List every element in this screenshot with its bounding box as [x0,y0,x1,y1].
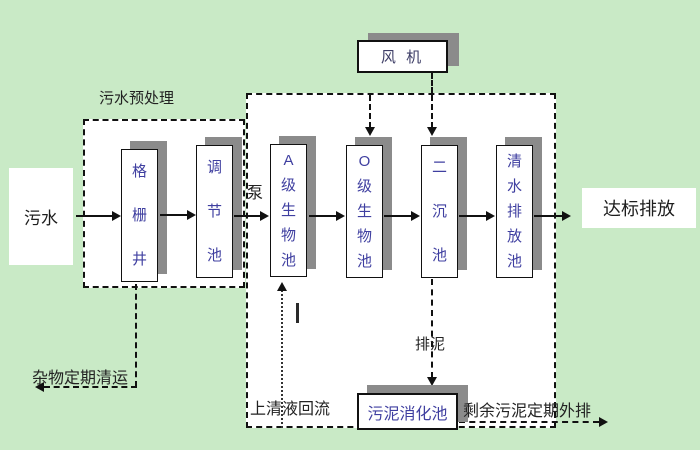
grid-well-box: 格栅井 [121,149,158,282]
debris-removal-label: 杂物定期清运 [32,364,128,388]
secondary-clarifier-label: 二沉池 [432,146,447,278]
wastewater-treatment-flow-diagram: 污水预处理 污水 达标排放 风 机 格栅井 调节池 A级生物池 O级生物池 二沉… [0,0,700,450]
o-bio-tank-label: O级生物池 [357,149,372,274]
excess-sludge-label: 剩余污泥定期外排 [463,397,591,421]
a-bio-tank-box: A级生物池 [270,144,307,277]
supernatant-return-label: 上清液回流 [250,395,330,419]
fan-label: 风 机 [381,46,424,67]
secondary-clarifier-box: 二沉池 [421,145,458,278]
flow-arrow-clarifier-to-clearwater [459,215,486,217]
sludge-digester-label: 污泥消化池 [367,400,447,424]
sludge-digester-box: 污泥消化池 [357,393,458,430]
air-arrow-to-clarifier [431,95,433,128]
clear-water-tank-label: 清水排放池 [507,149,522,274]
clear-water-tank-box: 清水排放池 [496,145,533,278]
influent-box: 污水 [9,168,73,265]
tick-mark [296,303,299,323]
grid-well-label: 格栅井 [132,150,147,282]
regulating-tank-label: 调节池 [207,146,222,278]
flow-arrow-clearwater-to-discharge [534,215,562,217]
a-bio-tank-label: A级生物池 [281,148,296,273]
discharge-box: 达标排放 [582,188,696,228]
fan-connector-line [431,73,433,93]
pump-label: 泵 [247,179,263,203]
air-arrow-to-obio [369,95,371,128]
debris-line-vertical [135,284,137,387]
o-bio-tank-box: O级生物池 [346,145,383,278]
fan-box: 风 机 [357,40,448,73]
sludge-arrow-clarifier-to-digester [431,279,433,378]
pretreatment-label: 污水预处理 [99,87,174,108]
flow-arrow-obio-to-clarifier [384,215,411,217]
influent-label: 污水 [24,204,58,229]
flow-arrow-regulating-to-abio [234,215,260,217]
regulating-tank-box: 调节池 [196,145,233,278]
excess-sludge-arrow [459,421,599,423]
flow-arrow-abio-to-obio [309,215,336,217]
flow-arrow-gridwell-to-regulating [160,214,187,216]
discharge-label: 达标排放 [603,195,675,221]
flow-arrow-influent-to-gridwell [76,215,112,217]
sludge-discharge-label: 排泥 [415,333,445,354]
